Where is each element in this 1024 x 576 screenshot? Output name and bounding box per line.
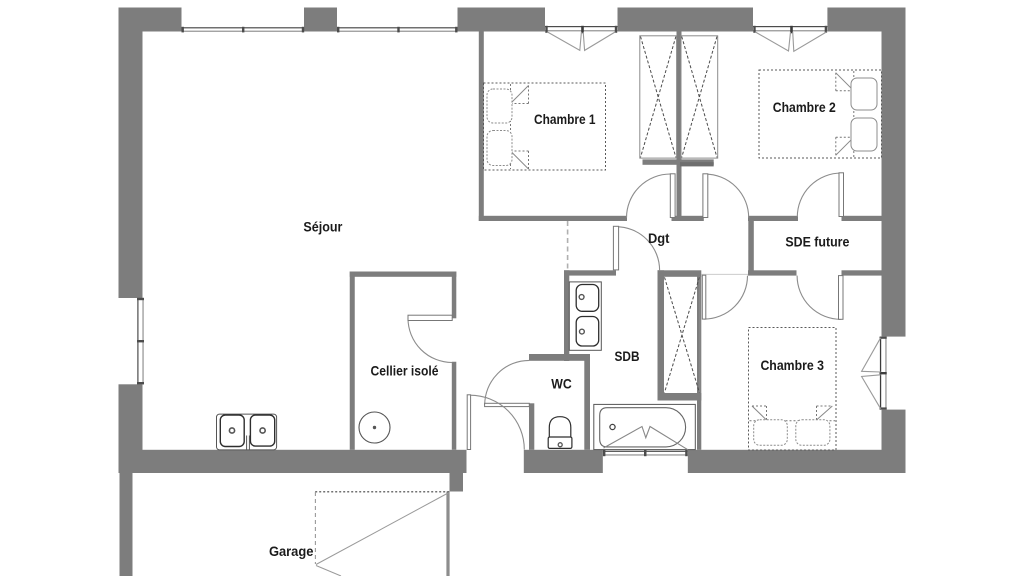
- svg-text:Garage: Garage: [269, 544, 314, 559]
- svg-text:SDE future: SDE future: [785, 234, 849, 249]
- svg-text:WC: WC: [551, 377, 572, 392]
- svg-text:Chambre 1: Chambre 1: [534, 112, 596, 127]
- svg-text:Chambre 3: Chambre 3: [760, 358, 824, 373]
- svg-text:Cellier isolé: Cellier isolé: [371, 363, 439, 378]
- svg-text:Chambre 2: Chambre 2: [773, 100, 836, 115]
- svg-text:Séjour: Séjour: [303, 219, 343, 234]
- svg-text:SDB: SDB: [615, 349, 640, 364]
- svg-text:Dgt: Dgt: [648, 231, 670, 246]
